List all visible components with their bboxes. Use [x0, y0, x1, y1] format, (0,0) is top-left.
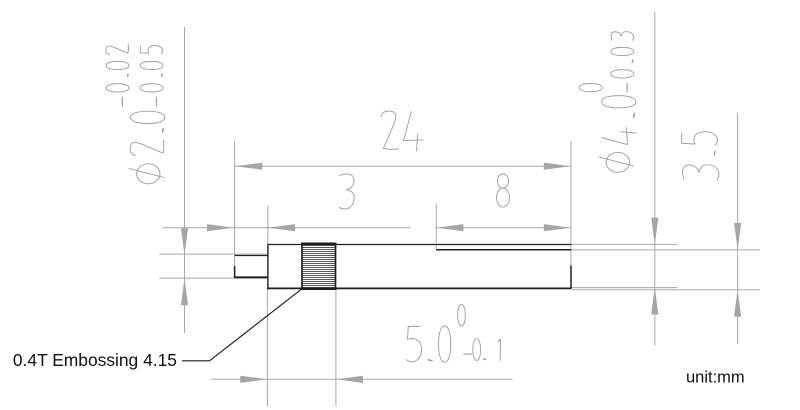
svg-text:unit:mm: unit:mm	[686, 369, 745, 387]
svg-text:0.4T Embossing 4.15: 0.4T Embossing 4.15	[13, 350, 177, 370]
